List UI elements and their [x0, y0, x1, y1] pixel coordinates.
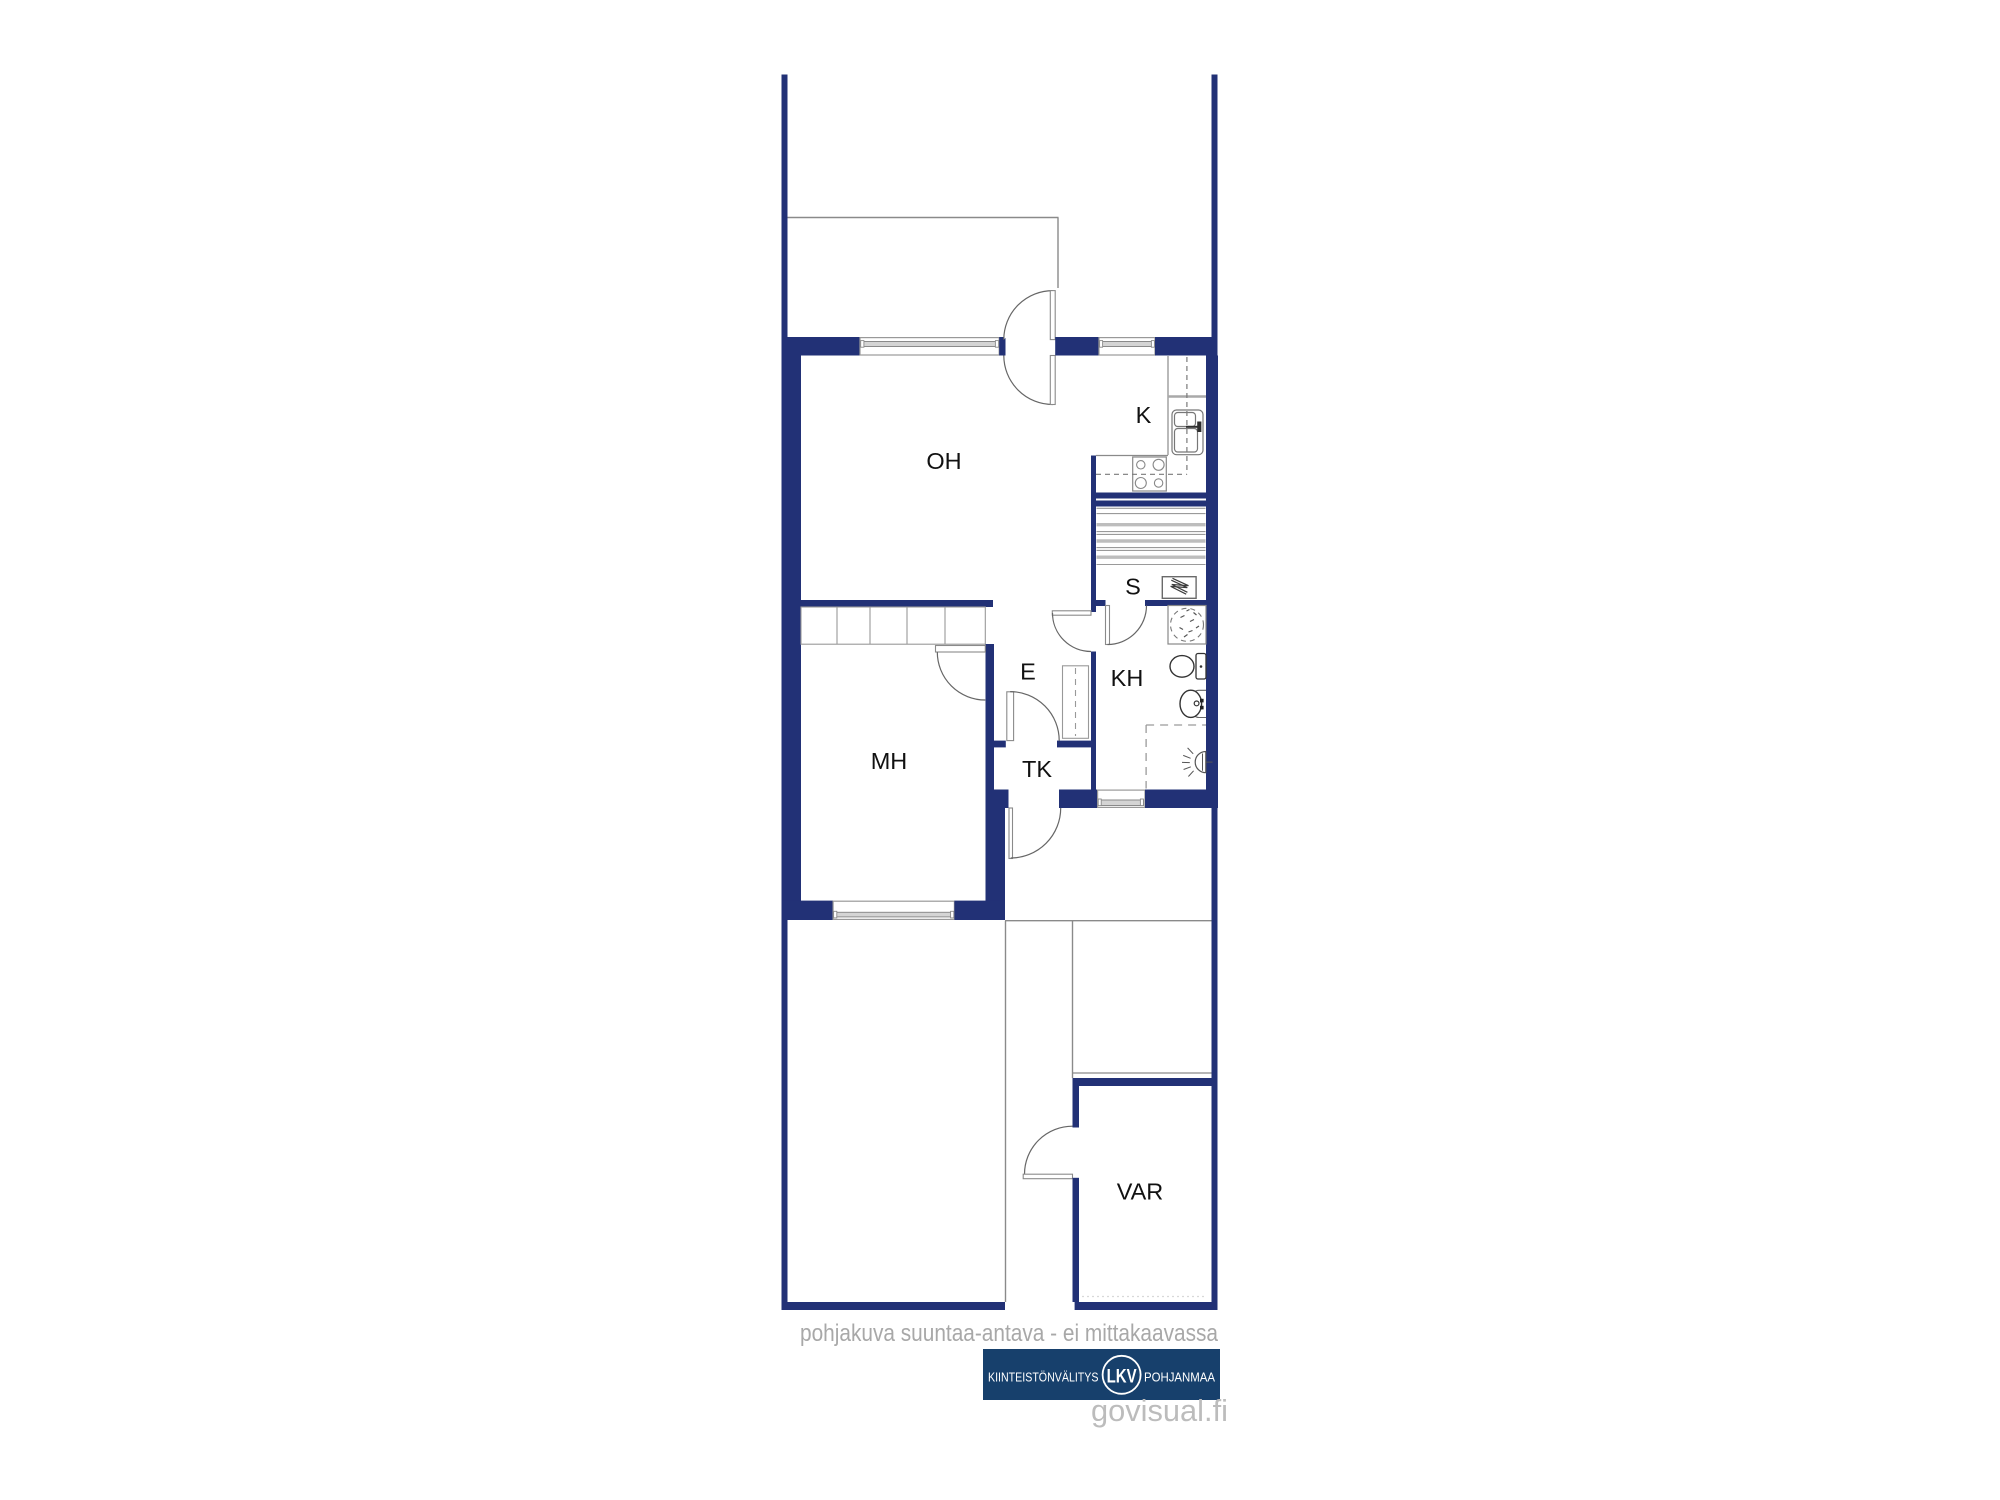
svg-text:S: S	[1125, 574, 1141, 600]
svg-text:OH: OH	[926, 448, 961, 474]
svg-text:MH: MH	[871, 748, 908, 774]
svg-text:KH: KH	[1111, 665, 1144, 691]
svg-text:govisual.fi: govisual.fi	[1091, 1393, 1228, 1428]
svg-text:E: E	[1020, 658, 1036, 684]
svg-text:KIINTEISTÖNVÄLITYS: KIINTEISTÖNVÄLITYS	[988, 1370, 1099, 1385]
svg-text:LKV: LKV	[1107, 1367, 1137, 1388]
svg-text:VAR: VAR	[1117, 1178, 1164, 1204]
svg-text:TK: TK	[1022, 756, 1052, 782]
svg-text:pohjakuva suuntaa-antava - ei: pohjakuva suuntaa-antava - ei mittakaava…	[800, 1320, 1219, 1347]
svg-text:K: K	[1136, 402, 1152, 428]
svg-text:POHJANMAA: POHJANMAA	[1144, 1370, 1215, 1385]
